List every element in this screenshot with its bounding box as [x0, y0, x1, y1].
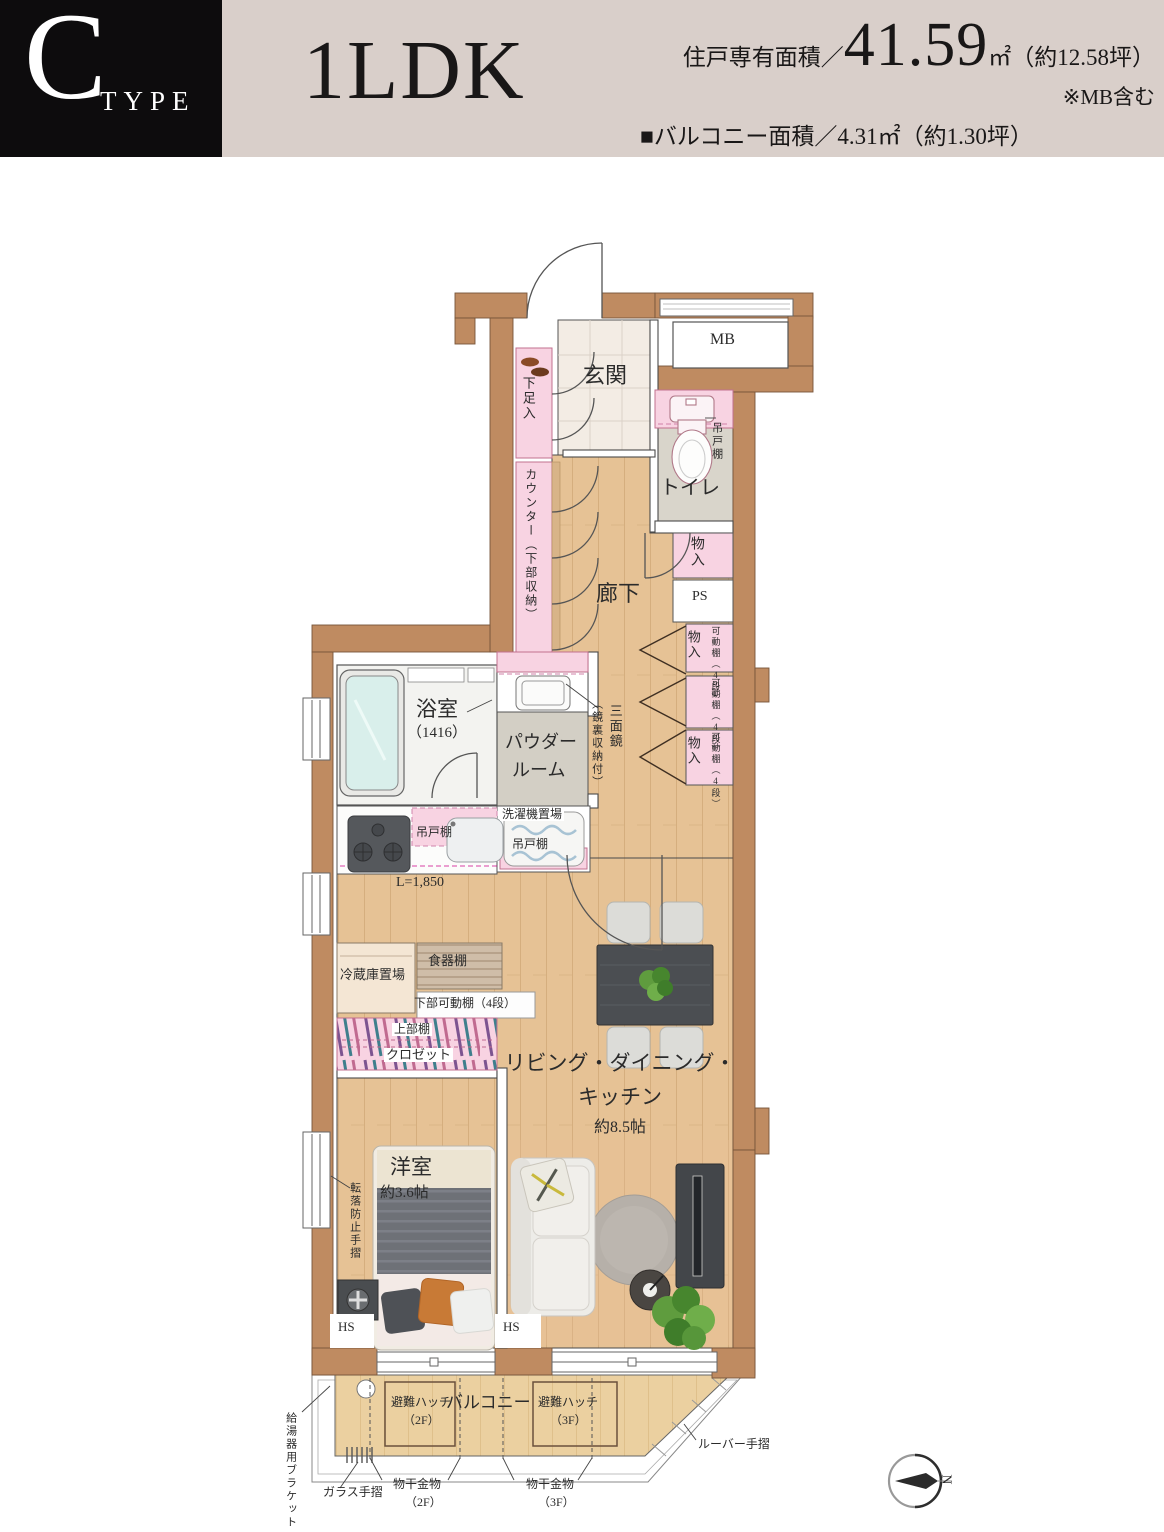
label-sanmenkyo-sub: （鏡裏収納付） [590, 698, 602, 789]
label-ldk-1: リビング・ダイニング・ [500, 1052, 740, 1074]
label-monoire-1: 物入 [688, 536, 703, 568]
label-powder-1: パウダー [505, 733, 577, 752]
tv [693, 1176, 702, 1276]
label-ldk-2: キッチン [500, 1086, 740, 1108]
label-monoire-2: 物入 [686, 630, 700, 660]
label-hinan-2f-floor: （2F） [403, 1414, 440, 1427]
label-monohoshi-3f: 物干金物 [526, 1478, 574, 1491]
label-hinan-3f: 避難ハッチ [538, 1396, 598, 1409]
label-louver-rail: ルーバー手摺 [698, 1438, 770, 1451]
label-hinan-2f: 避難ハッチ [391, 1396, 451, 1409]
label-reizouko: 冷蔵庫置場 [340, 968, 405, 982]
label-kadodana-3: 可動棚（4段） [710, 732, 720, 810]
label-kyutouki: 給湯器用ブラケット [284, 1412, 296, 1529]
balcony-area [312, 1375, 743, 1482]
bedroom-window [303, 1132, 330, 1228]
label-closet: クロゼット [384, 1048, 453, 1062]
label-toilet: トイレ [660, 478, 720, 499]
label-kabudana: 下部可動棚（4段） [414, 997, 516, 1010]
label-ldk-size: 約8.5帖 [500, 1120, 740, 1137]
kitchen-window [303, 873, 330, 935]
label-tsuridana-laundry: 吊戸棚 [512, 838, 548, 851]
label-tenraku: 転落防止手摺 [348, 1182, 360, 1260]
label-tsuridana-kitchen: 吊戸棚 [416, 826, 452, 839]
label-hs-1: HS [338, 1320, 355, 1334]
toilet-fixture [670, 396, 714, 484]
label-monoire-3: 物入 [686, 736, 700, 766]
label-kitchen-length: L=1,850 [396, 876, 444, 891]
label-balcony: バルコニー [446, 1394, 531, 1412]
label-sanmenkyo: 三面鏡 [608, 704, 622, 749]
label-counter: カウンター（下部収納） [524, 468, 537, 622]
label-rouka: 廊下 [596, 582, 640, 605]
label-sentakuki: 洗濯機置場 [500, 808, 564, 821]
label-powder-2: ルーム [512, 761, 565, 780]
floorplan-page: C TYPE 1LDK 住戸専有面積／41.59㎡（約12.58坪） ※MB含む… [0, 0, 1164, 1532]
label-glass-rail: ガラス手摺 [323, 1486, 383, 1499]
label-joubudana: 上部棚 [392, 1023, 432, 1036]
floorplan-drawing [0, 0, 1164, 1532]
label-hs-2: HS [503, 1320, 520, 1334]
label-genkan: 玄関 [583, 364, 627, 387]
label-bath-size: （1416） [407, 726, 467, 742]
label-yoshitsu: 洋室 [390, 1156, 432, 1178]
label-tsuridana-toilet: 吊戸棚 [710, 422, 722, 461]
label-shokkidana: 食器棚 [428, 954, 467, 968]
label-bath: 浴室 [416, 698, 458, 720]
label-north: N [938, 1474, 953, 1484]
label-ps: PS [692, 590, 708, 605]
compass-needle-icon [895, 1473, 938, 1489]
label-mb: MB [710, 332, 735, 349]
label-monohoshi-2f: 物干金物 [393, 1478, 441, 1491]
label-yoshitsu-size: 約3.6帖 [380, 1186, 429, 1202]
label-monohoshi-3f-floor: （3F） [538, 1496, 575, 1509]
label-hinan-3f-floor: （3F） [550, 1414, 587, 1427]
label-monohoshi-2f-floor: （2F） [405, 1496, 442, 1509]
label-gesokuire: 下足入 [521, 376, 535, 421]
drain [357, 1380, 375, 1398]
bath-window [303, 698, 330, 760]
